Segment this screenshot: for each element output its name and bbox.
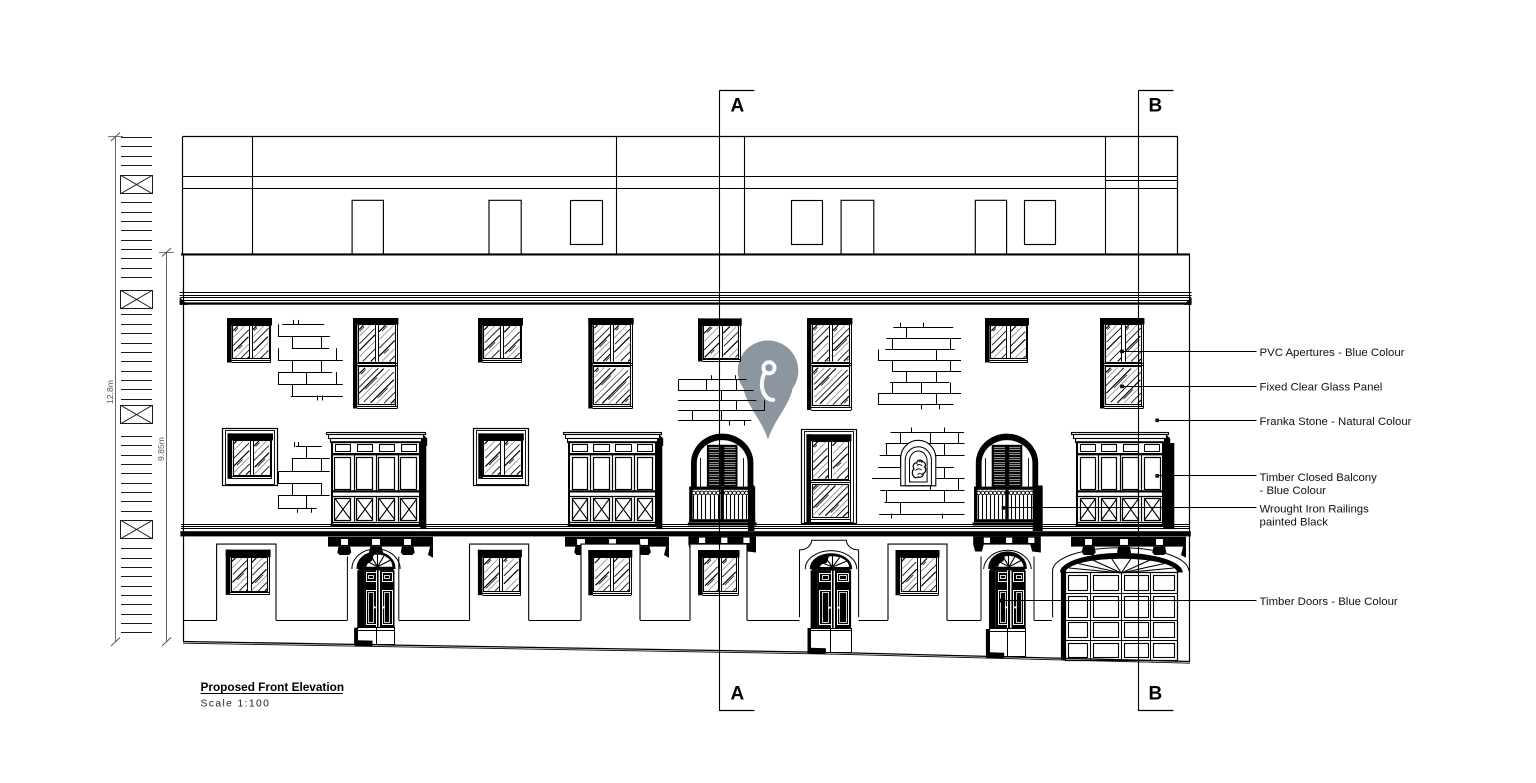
svg-text:Fixed Clear Glass Panel: Fixed Clear Glass Panel [1260, 382, 1383, 394]
svg-text:B: B [1149, 96, 1163, 117]
svg-text:PVC Apertures - Blue Colour: PVC Apertures - Blue Colour [1260, 347, 1405, 359]
svg-text:Wrought Iron Railings: Wrought Iron Railings [1260, 504, 1370, 516]
svg-text:painted Black: painted Black [1260, 516, 1329, 528]
svg-text:A: A [731, 684, 745, 705]
svg-text:A: A [731, 96, 745, 117]
svg-text:Proposed Front Elevation: Proposed Front Elevation [201, 680, 345, 694]
svg-text:B: B [1149, 684, 1163, 705]
svg-text:Scale 1:100: Scale 1:100 [201, 699, 271, 710]
svg-text:12.8m: 12.8m [105, 380, 115, 404]
svg-text:Franka Stone - Natural Colour: Franka Stone - Natural Colour [1260, 416, 1412, 428]
svg-text:Timber Doors - Blue Colour: Timber Doors - Blue Colour [1260, 596, 1398, 608]
svg-text:9.85m: 9.85m [156, 437, 166, 461]
svg-text:- Blue Colour: - Blue Colour [1260, 485, 1327, 497]
svg-text:Timber Closed Balcony: Timber Closed Balcony [1260, 472, 1378, 484]
